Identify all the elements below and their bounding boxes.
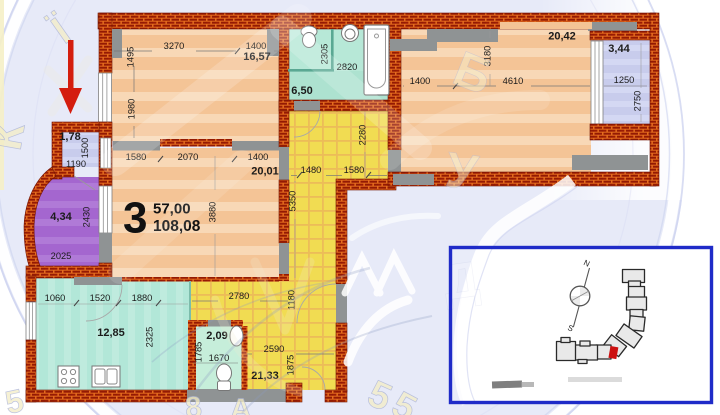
svg-text:5350: 5350	[287, 191, 297, 212]
svg-text:2780: 2780	[229, 291, 250, 301]
svg-text:20,42: 20,42	[548, 31, 576, 43]
svg-text:1480: 1480	[301, 165, 322, 175]
svg-text:1,78: 1,78	[59, 131, 80, 143]
svg-text:8: 8	[184, 391, 204, 415]
svg-text:1400: 1400	[410, 76, 431, 86]
svg-text:1980: 1980	[126, 99, 136, 120]
svg-text:3,44: 3,44	[608, 43, 630, 55]
svg-text:1190: 1190	[66, 159, 86, 169]
svg-text:1520: 1520	[90, 293, 111, 303]
svg-text:1785: 1785	[193, 342, 203, 363]
svg-text:1060: 1060	[45, 293, 66, 303]
svg-text:4610: 4610	[503, 76, 524, 86]
svg-text:А: А	[230, 393, 252, 415]
svg-text:1250: 1250	[614, 75, 635, 85]
svg-text:6,50: 6,50	[291, 85, 312, 97]
svg-text:1880: 1880	[132, 293, 153, 303]
svg-text:2070: 2070	[178, 152, 199, 162]
svg-text:1500: 1500	[80, 138, 90, 159]
svg-text:3270: 3270	[164, 41, 185, 51]
svg-text:2430: 2430	[81, 207, 91, 228]
svg-text:2750: 2750	[632, 91, 642, 112]
svg-text:2025: 2025	[51, 251, 72, 261]
svg-text:20,01: 20,01	[251, 166, 279, 178]
svg-text:2325: 2325	[144, 327, 154, 348]
svg-text:2280: 2280	[357, 125, 367, 146]
svg-text:4,34: 4,34	[50, 211, 72, 223]
svg-text:1495: 1495	[125, 47, 135, 68]
svg-text:1580: 1580	[344, 165, 365, 175]
svg-text:12,85: 12,85	[97, 327, 125, 339]
svg-text:2590: 2590	[264, 344, 285, 354]
